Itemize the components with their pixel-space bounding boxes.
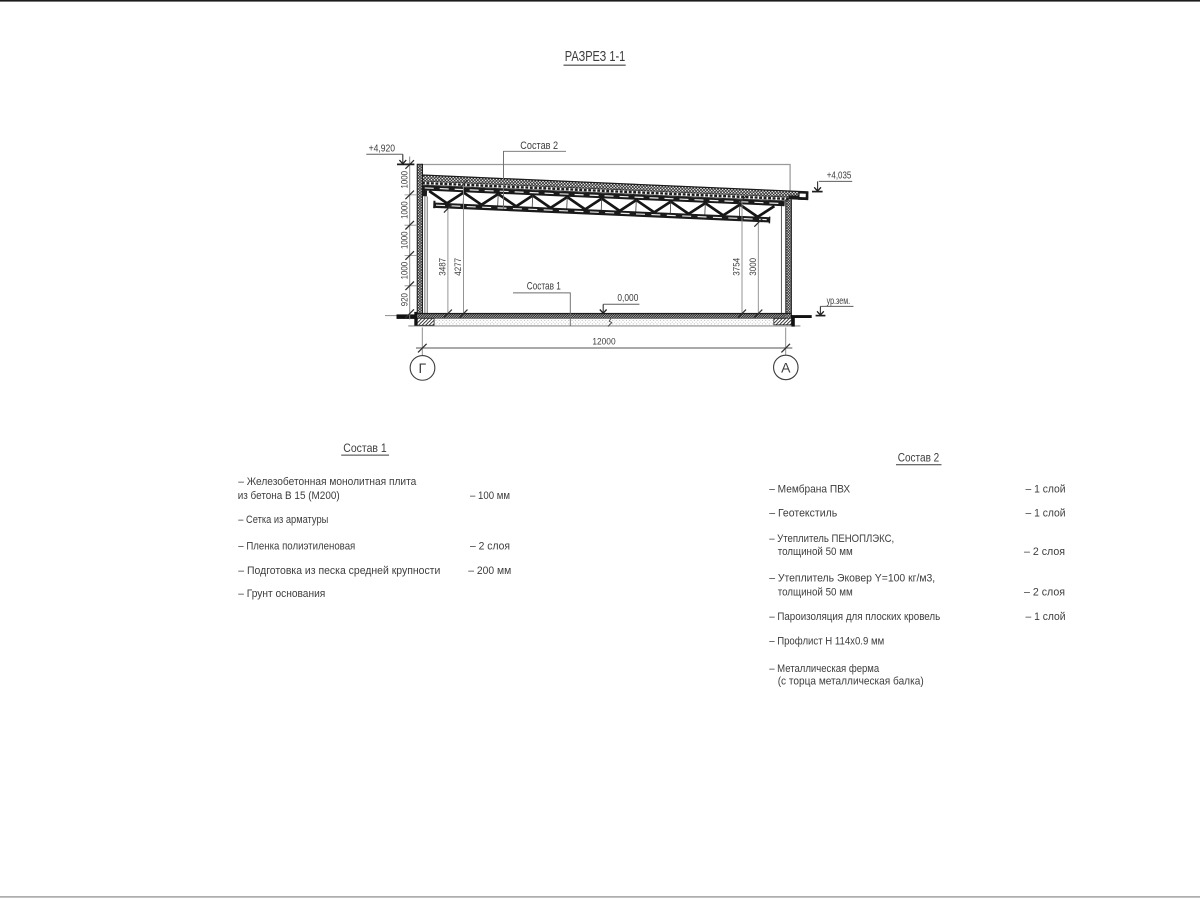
svg-text:3487: 3487 [438,258,449,276]
svg-text:– Металлическая ферма: – Металлическая ферма [769,663,880,675]
svg-text:ур.зем.: ур.зем. [827,296,851,307]
svg-text:3000: 3000 [748,258,759,276]
svg-text:1000: 1000 [399,201,410,219]
svg-text:1000: 1000 [399,171,410,189]
svg-text:+4,920: +4,920 [369,144,396,155]
svg-text:– 200 мм: – 200 мм [468,565,511,577]
svg-text:4277: 4277 [453,258,464,276]
svg-text:– 1 слой: – 1 слой [1026,611,1066,623]
svg-text:– 1 слой: – 1 слой [1026,484,1066,496]
svg-text:– Геотекстиль: – Геотекстиль [769,508,837,520]
svg-text:– Утеплитель Эковер Y=100 кг/м: – Утеплитель Эковер Y=100 кг/м3, [769,573,935,585]
svg-text:из бетона В 15 (М200): из бетона В 15 (М200) [238,490,340,502]
svg-text:– 2 слоя: – 2 слоя [470,540,510,552]
svg-text:3754: 3754 [732,257,743,275]
svg-text:920: 920 [399,293,410,306]
svg-text:РАЗРЕЗ 1-1: РАЗРЕЗ 1-1 [565,49,626,65]
svg-text:0,000: 0,000 [617,293,638,304]
svg-text:– Профлист Н 114х0.9 мм: – Профлист Н 114х0.9 мм [769,636,884,648]
svg-text:– Пленка полиэтиленовая: – Пленка полиэтиленовая [238,540,355,552]
svg-text:1000: 1000 [399,262,410,280]
svg-text:Г: Г [419,360,427,376]
svg-text:– 2 слоя: – 2 слоя [1024,586,1065,598]
svg-text:– 2 слоя: – 2 слоя [1024,546,1065,558]
svg-text:(с торца металлическая балка): (с торца металлическая балка) [778,675,924,687]
svg-text:Состав 2: Состав 2 [520,140,558,152]
svg-text:– Подготовка из песка средней: – Подготовка из песка средней крупности [238,565,440,577]
svg-text:толщиной 50 мм: толщиной 50 мм [778,546,853,558]
svg-text:– 100 мм: – 100 мм [470,490,510,502]
svg-text:А: А [781,359,791,375]
svg-text:– Пароизоляция для плоских кро: – Пароизоляция для плоских кровель [769,611,940,623]
svg-text:толщиной 50 мм: толщиной 50 мм [778,586,853,598]
svg-text:1000: 1000 [399,232,410,250]
svg-text:Состав 1: Состав 1 [343,441,387,455]
svg-text:– Железобетонная монолитная п: – Железобетонная монолитная плита [238,476,417,488]
svg-text:Состав 1: Состав 1 [527,281,561,293]
svg-text:Состав 2: Состав 2 [898,450,940,464]
svg-text:– Мембрана ПВХ: – Мембрана ПВХ [769,484,850,496]
svg-text:+4,035: +4,035 [827,170,852,181]
svg-text:– Сетка из арматуры: – Сетка из арматуры [238,514,328,526]
svg-text:– Утеплитель ПЕНОПЛЭКС,: – Утеплитель ПЕНОПЛЭКС, [769,533,894,545]
svg-text:– Грунт основания: – Грунт основания [238,588,325,600]
svg-text:– 1 слой: – 1 слой [1026,508,1066,520]
svg-text:12000: 12000 [592,336,615,347]
